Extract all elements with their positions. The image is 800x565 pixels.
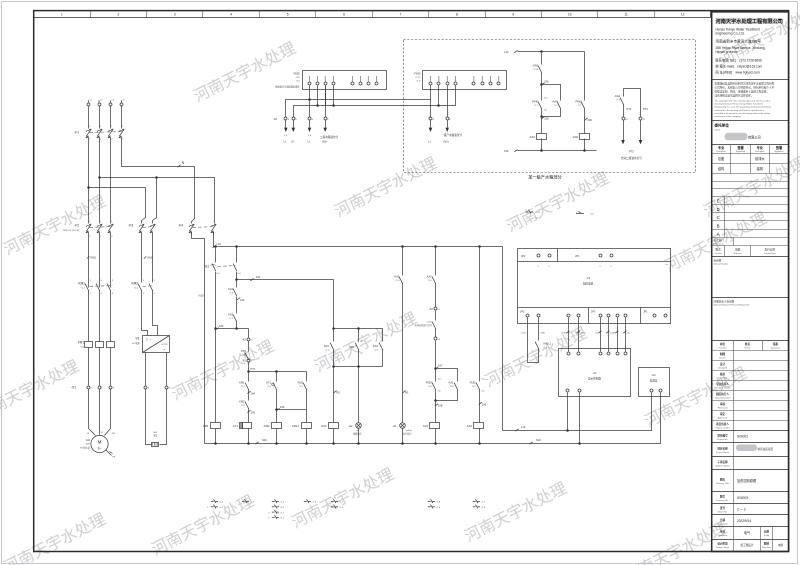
svg-text:日期: 日期	[720, 518, 726, 522]
svg-text:-U2: -U2	[651, 373, 656, 377]
svg-text:Drawn: Drawn	[719, 357, 726, 360]
svg-text:KA2: KA2	[394, 274, 399, 278]
svg-text:KA2: KA2	[427, 274, 432, 278]
svg-text:R1: R1	[405, 391, 409, 395]
svg-text:专业: 专业	[757, 145, 764, 150]
svg-text:-U1: -U1	[592, 371, 597, 375]
svg-text:加药控制原理: 加药控制原理	[737, 478, 757, 483]
svg-text:-X2: -X2	[429, 307, 434, 311]
svg-text:Version: Version	[715, 252, 723, 255]
svg-text:Project No.: Project No.	[717, 438, 728, 441]
svg-text:KM1: KM1	[78, 282, 85, 286]
svg-text:109: 109	[482, 402, 487, 406]
svg-text:L+: L+	[308, 140, 311, 144]
svg-text:-H1: -H1	[392, 424, 397, 428]
svg-text:L10: L10	[504, 50, 509, 54]
svg-text:Engineering Co.,Ltd.: Engineering Co.,Ltd.	[716, 32, 745, 36]
svg-text:R2: R2	[337, 391, 341, 395]
svg-text:加一级产水箱部分: 加一级产水箱部分	[528, 173, 562, 180]
svg-text:Signature: Signature	[736, 150, 746, 153]
svg-text:9: 9	[512, 12, 514, 16]
svg-text:N10: N10	[536, 438, 541, 442]
svg-text:105: 105	[251, 410, 256, 414]
svg-text:6: 6	[343, 12, 345, 16]
svg-text:结构: 结构	[718, 166, 724, 171]
svg-text:PT1: PT1	[241, 349, 246, 353]
svg-text:8: 8	[456, 12, 458, 16]
svg-text:Project Name: Project Name	[716, 451, 730, 454]
svg-text:Henan province: Henan province	[716, 50, 739, 54]
svg-text:B: B	[717, 223, 720, 228]
svg-text:DH: DH	[612, 333, 616, 335]
svg-text:Discipline Leader: Discipline Leader	[714, 387, 731, 390]
svg-text:网 址(WEB)：www.hgtyscl.com: 网 址(WEB)：www.hgtyscl.com	[716, 70, 761, 75]
svg-text:X2-: X2-	[438, 391, 442, 393]
svg-text:IN2+: IN2+	[444, 140, 450, 144]
svg-text:S7TW: S7TW	[161, 344, 168, 346]
svg-text:-KA4: -KA4	[529, 135, 535, 139]
svg-text:104: 104	[251, 391, 256, 395]
svg-text:KM1: KM1	[91, 256, 97, 260]
svg-text:L+: L+	[428, 140, 431, 144]
svg-text:专业: 专业	[720, 530, 726, 534]
svg-text:显示控制器: 显示控制器	[588, 377, 601, 381]
svg-text:Discipline: Discipline	[716, 151, 726, 153]
svg-text:D: D	[717, 207, 720, 212]
svg-text:子项名称: 子项名称	[717, 460, 728, 464]
svg-text:X10: X10	[504, 149, 509, 153]
svg-text:IN1+: IN1+	[322, 140, 328, 144]
svg-text:签署: 签署	[736, 145, 744, 150]
svg-text:KA1: KA1	[228, 287, 233, 291]
svg-text:FR1: FR1	[78, 341, 84, 345]
svg-text:L10: L10	[217, 242, 222, 246]
svg-text:-KT1: -KT1	[232, 424, 238, 428]
svg-text:比例: 比例	[764, 530, 770, 534]
svg-text:108: 108	[438, 403, 443, 407]
svg-text:园区执行人: 园区执行人	[716, 392, 729, 396]
svg-text:加药电源: 加药电源	[583, 282, 594, 286]
svg-text:JP3: JP3	[591, 309, 596, 313]
svg-text:Signature: Signature	[771, 346, 781, 349]
svg-text:C: C	[717, 215, 720, 220]
svg-text:S00003: S00003	[737, 496, 748, 500]
svg-text:202: 202	[544, 117, 549, 121]
svg-text:KA3: KA3	[373, 344, 378, 348]
svg-text:设计: 设计	[720, 362, 726, 366]
svg-text:/1.10: /1.10	[535, 212, 541, 214]
svg-text:/1.11: /1.11	[535, 217, 540, 219]
svg-text:-X2: -X2	[242, 358, 247, 362]
svg-text:签署: 签署	[775, 145, 783, 150]
svg-text:Discipline: Discipline	[718, 535, 728, 537]
svg-text:Special Stamp Of Person Regist: Special Stamp Of Person Registered	[714, 304, 751, 307]
svg-text:106: 106	[280, 405, 285, 409]
svg-text:102: 102	[240, 298, 245, 302]
svg-text:4: 4	[230, 12, 232, 16]
svg-text:摘要: 摘要	[735, 248, 741, 252]
svg-text:建筑: 建筑	[757, 166, 764, 171]
svg-text:Issued Date: Issued Date	[764, 252, 776, 255]
svg-text:-KA5: -KA5	[532, 63, 538, 67]
svg-text:110E: 110E	[581, 333, 586, 335]
svg-text:给排水: 给排水	[755, 156, 765, 161]
svg-text:河南省新乡市黄河大道288号: 河南省新乡市黄河大道288号	[716, 39, 762, 44]
svg-text:Area Executed: Area Executed	[715, 397, 730, 400]
svg-text:A: A	[717, 232, 720, 237]
svg-text:-F1: -F1	[74, 131, 79, 135]
svg-text:3~: 3~	[98, 446, 102, 450]
svg-text:-H2: -H2	[348, 424, 353, 428]
svg-text:有限公司: 有限公司	[748, 135, 761, 140]
svg-text:drawing belong to Henan Tianyu: drawing belong to Henan Tianyu Water Tre…	[715, 103, 764, 106]
svg-text:-F2: -F2	[74, 224, 79, 228]
svg-text:Name: Name	[745, 347, 752, 349]
svg-text:-E1: -E1	[153, 434, 158, 438]
svg-text:Sheet No.: Sheet No.	[718, 510, 728, 513]
svg-text:设计阶段: 设计阶段	[717, 542, 728, 546]
svg-text:施工图设计: 施工图设计	[741, 543, 754, 547]
svg-text:Project Leader: Project Leader	[715, 427, 729, 430]
svg-text:违者将依法追究其相关法律责任。: 违者将依法追究其相关法律责任。	[715, 93, 754, 97]
svg-text:F639: F639	[294, 72, 300, 76]
svg-text:Issue Date: Issue Date	[717, 522, 728, 525]
svg-text:岗位: 岗位	[720, 342, 726, 346]
svg-text:电源盒: 电源盒	[650, 379, 658, 383]
svg-text:-F640: -F640	[414, 72, 421, 76]
svg-text:Engineering Co., Ltd. The prop: Engineering Co., Ltd. The proprietary te…	[715, 106, 772, 109]
svg-text:First Issue: First Issue	[714, 242, 725, 245]
svg-text:Drawing No.: Drawing No.	[716, 499, 728, 502]
svg-text:一级产水箱液位计: 一级产水箱液位计	[441, 133, 462, 137]
svg-text:-S1: -S1	[204, 265, 209, 269]
svg-text:Client: Client	[715, 129, 721, 132]
svg-text:200: 200	[588, 118, 593, 122]
svg-text:L+: L+	[284, 140, 287, 144]
svg-text:-X2: -X2	[273, 117, 278, 121]
svg-text:F639: F639	[426, 380, 432, 384]
svg-text:图别: 图别	[764, 542, 770, 546]
svg-text:Designed: Designed	[718, 368, 728, 370]
svg-text:注册执业人专用章: 注册执业人专用章	[714, 300, 735, 304]
svg-text:-M1: -M1	[86, 438, 91, 442]
svg-text:联系电话(TEL)：(373 3728 8666: 联系电话(TEL)：(373 3728 8666	[716, 58, 762, 63]
svg-text:本图版权及其相关权利均为河南天宇水处理工程有限: 本图版权及其相关权利均为河南天宇水处理工程有限	[715, 81, 775, 85]
svg-text:首次发行: 首次发行	[714, 238, 725, 242]
svg-text:JP2: JP2	[350, 345, 355, 349]
svg-text:N10: N10	[262, 438, 267, 442]
svg-text:F640: F640	[575, 99, 581, 103]
svg-text:10: 10	[568, 12, 572, 16]
svg-text:项目编号: 项目编号	[716, 433, 728, 437]
svg-text:N10: N10	[199, 294, 204, 298]
svg-text:Design Stage: Design Stage	[716, 546, 730, 549]
svg-text:11: 11	[625, 12, 629, 16]
svg-text:X1-: X1-	[482, 391, 486, 393]
svg-text:KA3: KA3	[321, 424, 326, 428]
svg-text:项目负责人: 项目负责人	[715, 422, 729, 426]
svg-text:Subitem Name: Subitem Name	[715, 464, 730, 467]
svg-text:3: 3	[174, 12, 176, 16]
svg-text:项目名称: 项目名称	[716, 446, 728, 450]
svg-text:专用章: 专用章	[714, 259, 722, 263]
svg-text:公司所有。未经本公司书面许可，任何单位和个人不: 公司所有。未经本公司书面许可，任何单位和个人不	[715, 85, 775, 89]
svg-text:permission of the company.: permission of the company.	[715, 115, 742, 118]
svg-text:M: M	[292, 140, 294, 144]
svg-text:KA1: KA1	[423, 424, 428, 428]
svg-text:KA3: KA3	[228, 313, 233, 317]
svg-text:MSP-63 D16 3P: MSP-63 D16 3P	[63, 230, 79, 232]
svg-text:姓名: 姓名	[744, 342, 751, 346]
svg-text:JP1: JP1	[575, 254, 580, 258]
svg-text:S00001: S00001	[737, 435, 748, 439]
svg-text:Reviewed: Reviewed	[718, 408, 728, 410]
svg-text:E: E	[717, 199, 720, 204]
svg-text:Checked: Checked	[718, 378, 727, 380]
svg-text:-KM2: -KM2	[263, 424, 270, 428]
svg-text:107: 107	[438, 364, 443, 368]
svg-text:F639: F639	[470, 380, 476, 384]
svg-text:KM2.1: KM2.1	[292, 424, 300, 428]
svg-text:The copyright and other relate: The copyright and other related rights a…	[715, 100, 772, 103]
svg-text:张号: 张号	[720, 506, 726, 510]
svg-text:Sub ject: Sub ject	[734, 252, 742, 255]
svg-text:Special Stamp: Special Stamp	[714, 263, 729, 266]
svg-text:Drawing Title: Drawing Title	[716, 482, 729, 485]
svg-text:专业负责人: 专业负责人	[716, 382, 729, 386]
svg-text:KM2: KM2	[131, 282, 138, 286]
svg-text:yellow: yellow	[406, 430, 412, 432]
svg-text:~: ~	[150, 338, 152, 342]
svg-text:X0-: X0-	[544, 110, 548, 112]
svg-text:委托单位: 委托单位	[715, 123, 730, 128]
svg-text:-KA4: -KA4	[552, 99, 558, 103]
svg-text:7: 7	[400, 12, 402, 16]
svg-text:FR1: FR1	[324, 344, 329, 348]
svg-text:100C: 100C	[521, 333, 527, 335]
svg-text:-V1: -V1	[135, 337, 140, 341]
svg-text:KA1: KA1	[449, 380, 454, 384]
svg-text:制图: 制图	[720, 352, 726, 356]
svg-text:5: 5	[287, 12, 289, 16]
svg-text:M: M	[98, 439, 102, 444]
svg-text:-KM1: -KM1	[202, 424, 209, 428]
svg-text:得擅自复制、修改、传播或用于其他工程项目。: 得擅自复制、修改、传播或用于其他工程项目。	[715, 89, 769, 93]
svg-text:-F4: -F4	[178, 224, 183, 228]
svg-text:KM2: KM2	[298, 380, 304, 384]
svg-text:KA2: KA2	[467, 424, 472, 428]
svg-text:-X1: -X1	[71, 386, 76, 390]
svg-text:Position: Position	[719, 346, 728, 349]
svg-text:201: 201	[544, 80, 549, 84]
svg-text:图号: 图号	[720, 494, 726, 498]
svg-text:2 — 3: 2 — 3	[737, 507, 746, 511]
svg-text:Discipline: Discipline	[755, 151, 765, 153]
svg-text:电施: 电施	[778, 543, 784, 547]
svg-text:审核: 审核	[720, 402, 726, 406]
svg-text:-KA5: -KA5	[572, 135, 578, 139]
svg-text:F640: F640	[532, 99, 538, 103]
svg-text:2022/9/14: 2022/9/14	[737, 519, 751, 523]
svg-text:PT2: PT2	[627, 107, 632, 111]
svg-text:-V2: -V2	[586, 276, 591, 280]
svg-text:审定: 审定	[720, 412, 726, 416]
svg-text:PT2: PT2	[629, 149, 634, 153]
svg-text:2: 2	[117, 12, 119, 16]
svg-text:101: 101	[256, 275, 261, 279]
svg-text:二级水箱液位计: 二级水箱液位计	[320, 135, 339, 139]
svg-text:-F3: -F3	[128, 224, 133, 228]
svg-text:JP2: JP2	[521, 254, 526, 258]
svg-text:contained in the drawing shall: contained in the drawing shall not be re…	[715, 109, 765, 112]
svg-text:KM1: KM1	[239, 380, 245, 384]
svg-text:Approved: Approved	[718, 417, 728, 420]
svg-text:发行日期: 发行日期	[765, 248, 776, 252]
svg-text:1: 1	[61, 12, 63, 16]
svg-text:/1.10: /1.10	[415, 77, 421, 79]
svg-text:-X2: -X2	[242, 337, 247, 341]
svg-text:PT2: PT2	[643, 107, 648, 111]
svg-text:启动二级进水信号: 启动二级进水信号	[621, 156, 642, 160]
svg-text:110D: 110D	[561, 333, 566, 335]
svg-text:JP1: JP1	[643, 309, 648, 313]
svg-text:JP2: JP2	[520, 309, 525, 313]
svg-text:mn6n: mn6n	[427, 321, 433, 323]
svg-text:Scale: Scale	[764, 535, 770, 537]
svg-text:版次: 版次	[716, 248, 722, 252]
svg-text:校对: 校对	[719, 372, 726, 376]
svg-text:103: 103	[219, 324, 224, 328]
svg-text:河南天宇水处理工程有限公司: 河南天宇水处理工程有限公司	[716, 17, 783, 25]
svg-text:Signature: Signature	[774, 150, 784, 153]
svg-text:签署: 签署	[772, 342, 779, 346]
svg-text:Dwg.Sort: Dwg.Sort	[762, 546, 771, 549]
svg-text:总图: 总图	[718, 156, 724, 161]
svg-text:provided or disclosed to any t: provided or disclosed to any third party…	[715, 112, 772, 115]
svg-text:图名: 图名	[720, 478, 726, 482]
svg-text:L10: L10	[521, 425, 526, 429]
svg-text:KT1: KT1	[266, 380, 271, 384]
svg-text:KM2: KM2	[239, 399, 245, 403]
svg-text:KM2.1: KM2.1	[544, 342, 552, 346]
svg-text:12: 12	[681, 12, 685, 16]
svg-text:-KA4: -KA4	[614, 94, 620, 98]
svg-text:电气: 电气	[744, 530, 751, 535]
svg-text:/1.10: /1.10	[533, 69, 539, 71]
svg-text:PT1: PT1	[251, 367, 256, 371]
svg-text:制药改造项目: 制药改造项目	[758, 447, 774, 451]
svg-text:邮 箱(E-mail)：xxtyscl@163.com: 邮 箱(E-mail)：xxtyscl@163.com	[716, 64, 763, 69]
svg-text:专业: 专业	[718, 145, 725, 150]
svg-text:100D: 100D	[540, 333, 546, 335]
